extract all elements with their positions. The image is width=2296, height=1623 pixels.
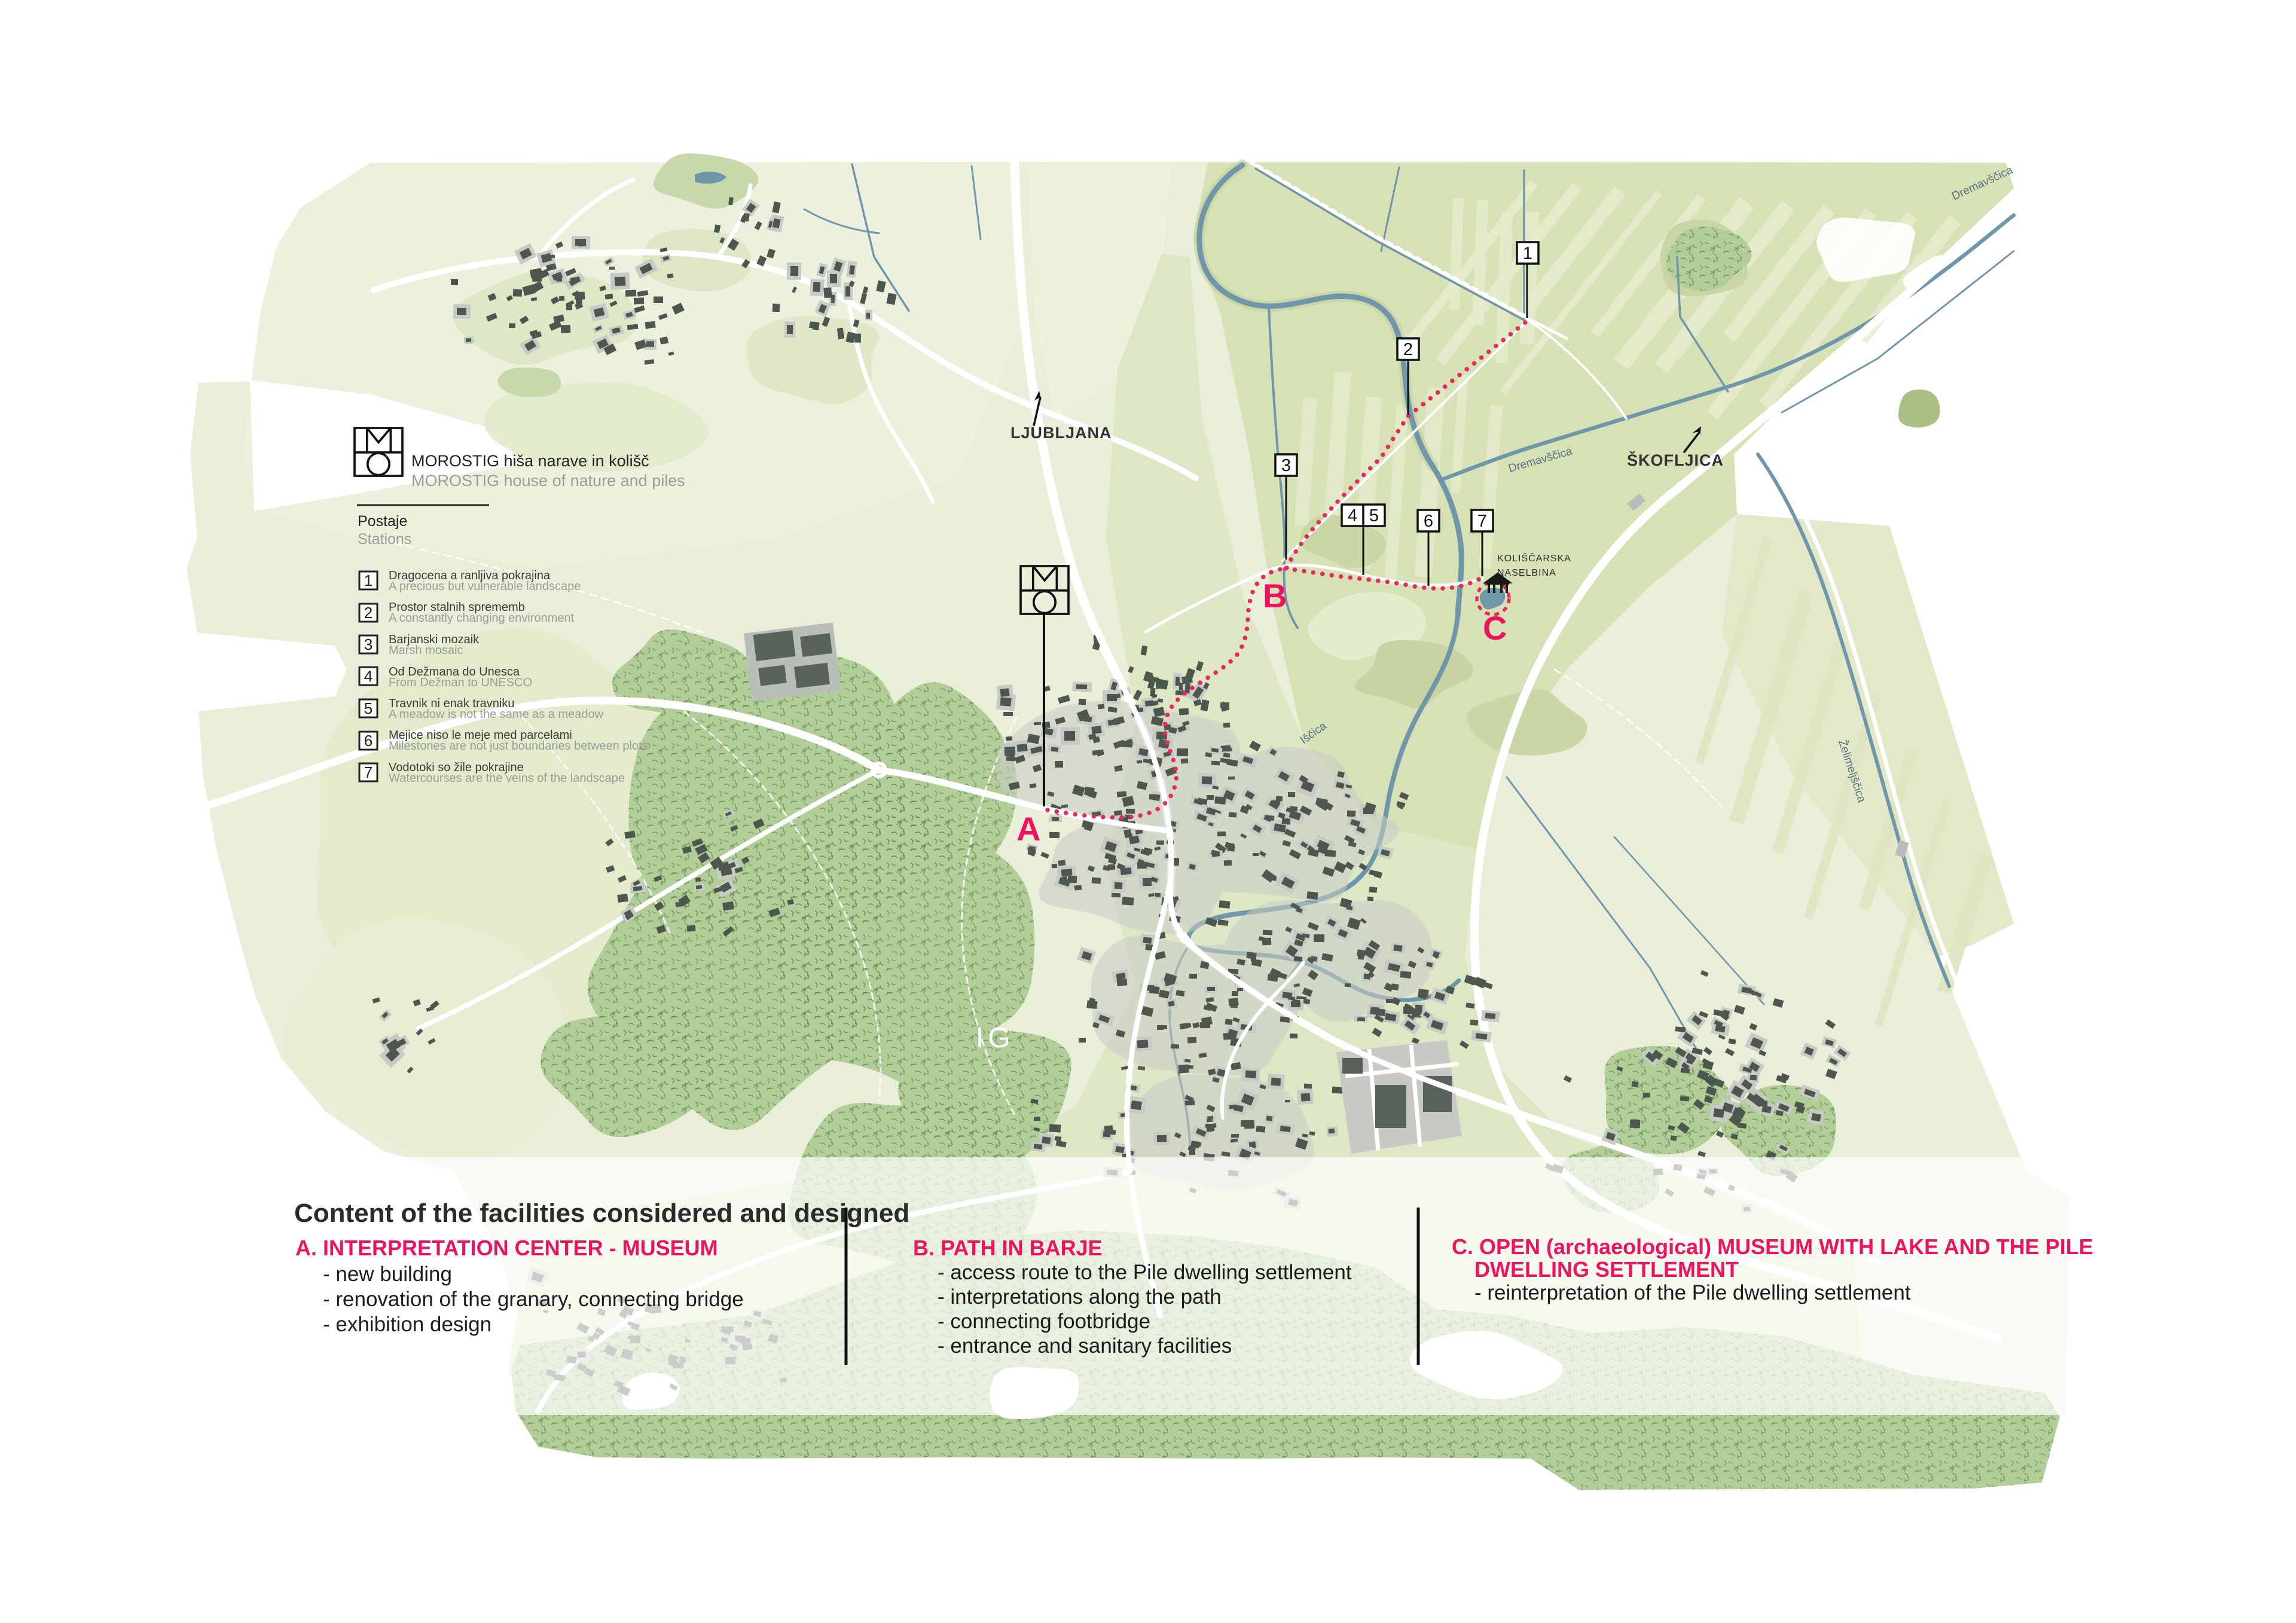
svg-text:- new building: - new building <box>323 1263 452 1286</box>
svg-text:MOROSTIG hiša narave in kolišč: MOROSTIG hiša narave in kolišč <box>411 452 649 470</box>
svg-text:B: B <box>1263 577 1287 615</box>
svg-text:LJUBLJANA: LJUBLJANA <box>1010 424 1112 442</box>
svg-text:A: A <box>1016 810 1040 848</box>
svg-text:NASELBINA: NASELBINA <box>1497 568 1556 578</box>
svg-text:Marsh mosaic: Marsh mosaic <box>389 644 463 657</box>
svg-text:Postaje: Postaje <box>358 513 407 530</box>
svg-text:6: 6 <box>364 732 373 750</box>
svg-text:7: 7 <box>1477 512 1487 531</box>
svg-text:1: 1 <box>1523 244 1532 263</box>
svg-text:4: 4 <box>364 667 373 685</box>
svg-text:IG: IG <box>976 1022 1015 1054</box>
svg-text:C: C <box>1483 609 1507 647</box>
svg-text:6: 6 <box>1424 512 1433 531</box>
svg-text:A meadow is not the same as a: A meadow is not the same as a meadow <box>389 708 604 721</box>
svg-text:From Dežman to UNESCO: From Dežman to UNESCO <box>389 676 532 689</box>
svg-text:- renovation of the granary, c: - renovation of the granary, connecting … <box>323 1288 744 1311</box>
svg-text:4: 4 <box>1348 506 1357 525</box>
svg-text:A constantly changing environm: A constantly changing environment <box>389 612 575 625</box>
svg-text:Stations: Stations <box>358 531 411 548</box>
svg-text:5: 5 <box>364 699 373 717</box>
svg-text:C. OPEN (archaeological) MUSEU: C. OPEN (archaeological) MUSEUM WITH LAK… <box>1452 1234 2093 1259</box>
svg-text:- entrance and sanitary facili: - entrance and sanitary facilities <box>938 1334 1232 1358</box>
svg-text:- connecting footbridge: - connecting footbridge <box>938 1310 1150 1333</box>
svg-text:7: 7 <box>364 763 373 781</box>
svg-text:ŠKOFLJICA: ŠKOFLJICA <box>1627 451 1724 469</box>
svg-text:Milestones are not just bounda: Milestones are not just boundaries betwe… <box>389 739 648 753</box>
svg-text:MOROSTIG house of nature and p: MOROSTIG house of nature and piles <box>411 472 685 490</box>
svg-text:A precious but vulnerable land: A precious but vulnerable landscape <box>389 580 581 593</box>
svg-text:A. INTERPRETATION CENTER - MUS: A. INTERPRETATION CENTER - MUSEUM <box>295 1236 718 1260</box>
svg-text:DWELLING SETTLEMENT: DWELLING SETTLEMENT <box>1474 1257 1739 1282</box>
svg-text:Watercourses are the veins of: Watercourses are the veins of the landsc… <box>389 772 625 785</box>
svg-text:- access route to the Pile dwe: - access route to the Pile dwelling sett… <box>938 1261 1352 1284</box>
svg-text:5: 5 <box>1369 506 1379 525</box>
svg-text:B. PATH IN BARJE: B. PATH IN BARJE <box>913 1236 1103 1260</box>
svg-text:KOLIŠČARSKA: KOLIŠČARSKA <box>1497 552 1571 564</box>
svg-text:2: 2 <box>1403 340 1413 359</box>
svg-text:3: 3 <box>364 635 373 653</box>
svg-text:3: 3 <box>1281 456 1291 475</box>
svg-text:- exhibition design: - exhibition design <box>323 1313 491 1336</box>
svg-text:1: 1 <box>364 571 373 589</box>
svg-text:- interpretations along the pa: - interpretations along the path <box>938 1285 1222 1309</box>
svg-text:Content of the facilities cons: Content of the facilities considered and… <box>294 1199 909 1228</box>
svg-text:- reinterpretation of the Pile: - reinterpretation of the Pile dwelling … <box>1474 1281 1911 1304</box>
svg-text:2: 2 <box>364 604 373 622</box>
